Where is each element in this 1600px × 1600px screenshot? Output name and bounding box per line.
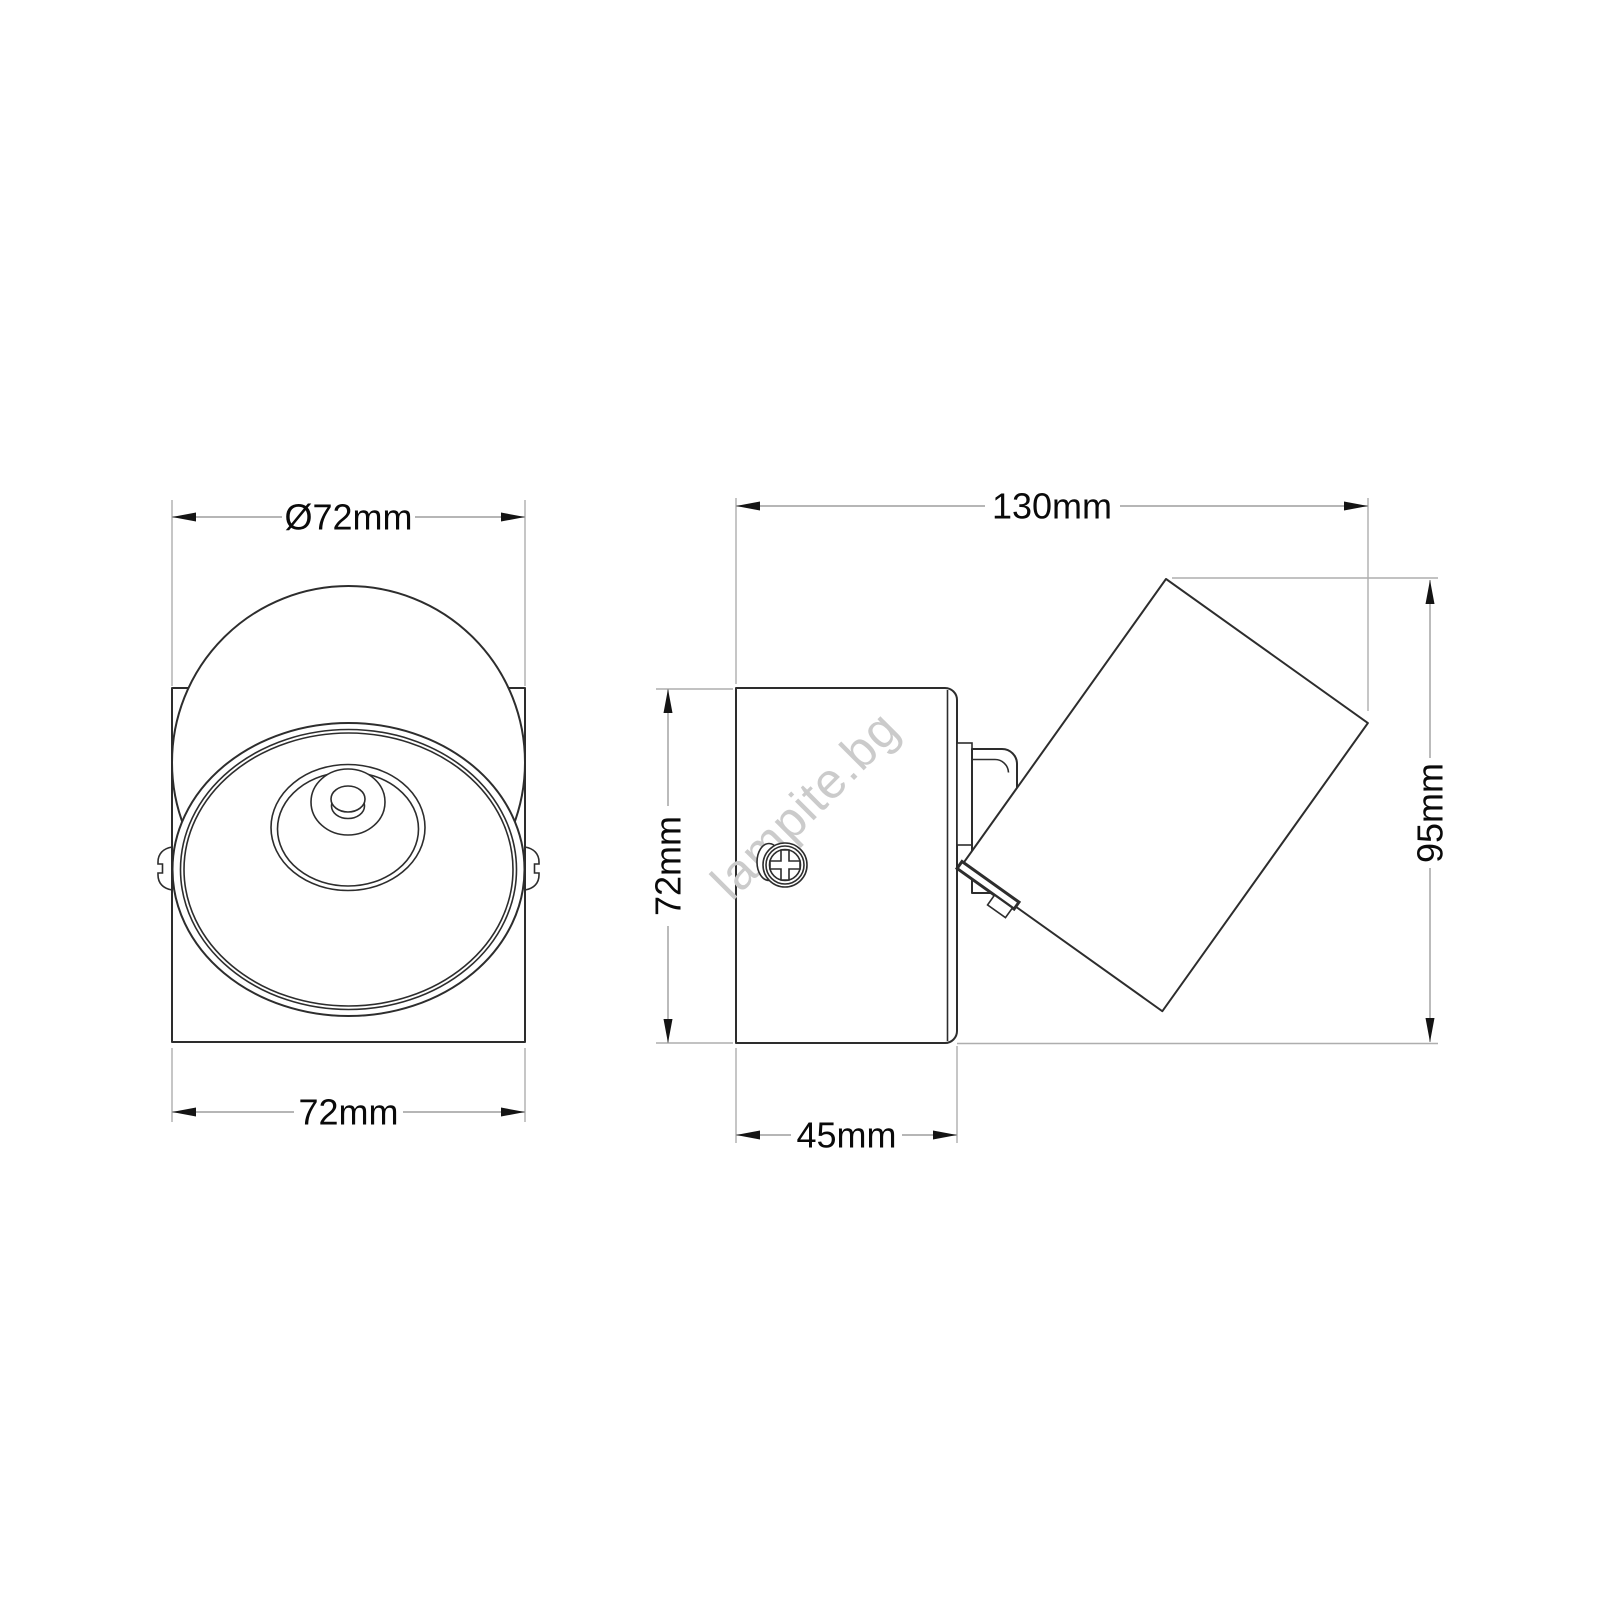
arrow-left: [736, 502, 760, 511]
arrow-left: [736, 1131, 760, 1140]
left-mount-tab: [158, 847, 172, 890]
hinge-arm: [957, 743, 972, 845]
dim-label-side-width: 130mm: [992, 486, 1112, 527]
dim-front-width: 72mm: [172, 1048, 525, 1133]
arrow-left: [172, 513, 196, 522]
arrow-right: [501, 1108, 525, 1117]
arrow-right: [1344, 502, 1368, 511]
arrow-right: [933, 1131, 957, 1140]
dim-label-side-depth: 45mm: [796, 1115, 896, 1156]
arrow-up: [1426, 580, 1435, 604]
led-button-top: [331, 786, 365, 812]
dim-label-front-diameter: Ø72mm: [284, 497, 412, 538]
dim-label-side-body-height: 72mm: [648, 816, 689, 916]
arrow-down: [664, 1019, 673, 1043]
arrow-left: [172, 1108, 196, 1117]
lamp-head-side: [960, 579, 1367, 1011]
arrow-right: [501, 513, 525, 522]
dim-label-side-overall-height: 95mm: [1410, 763, 1451, 863]
front-view: [158, 586, 539, 1042]
technical-drawing-canvas: lampite.bg Ø72mm: [0, 0, 1600, 1600]
arrow-down: [1426, 1018, 1435, 1042]
arrow-up: [664, 689, 673, 713]
dim-side-depth: 45mm: [736, 1046, 957, 1156]
dim-label-front-width: 72mm: [298, 1092, 398, 1133]
right-mount-tab: [525, 847, 539, 890]
drawing-page: lampite.bg Ø72mm: [0, 0, 1600, 1600]
